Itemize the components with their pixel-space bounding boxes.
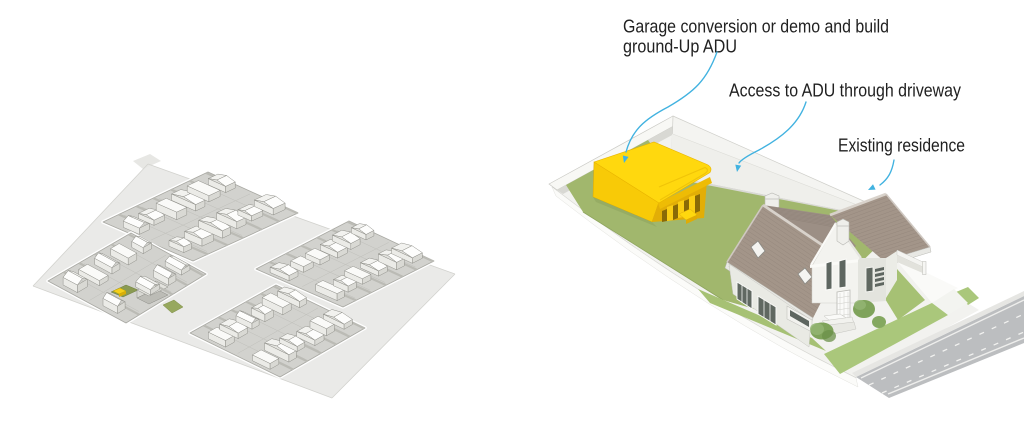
svg-text:ground-Up ADU: ground-Up ADU [623,37,737,57]
svg-text:Garage conversion or demo and: Garage conversion or demo and build [623,17,889,37]
svg-text:Access to ADU through driveway: Access to ADU through driveway [729,81,961,101]
svg-text:Existing residence: Existing residence [838,136,965,156]
